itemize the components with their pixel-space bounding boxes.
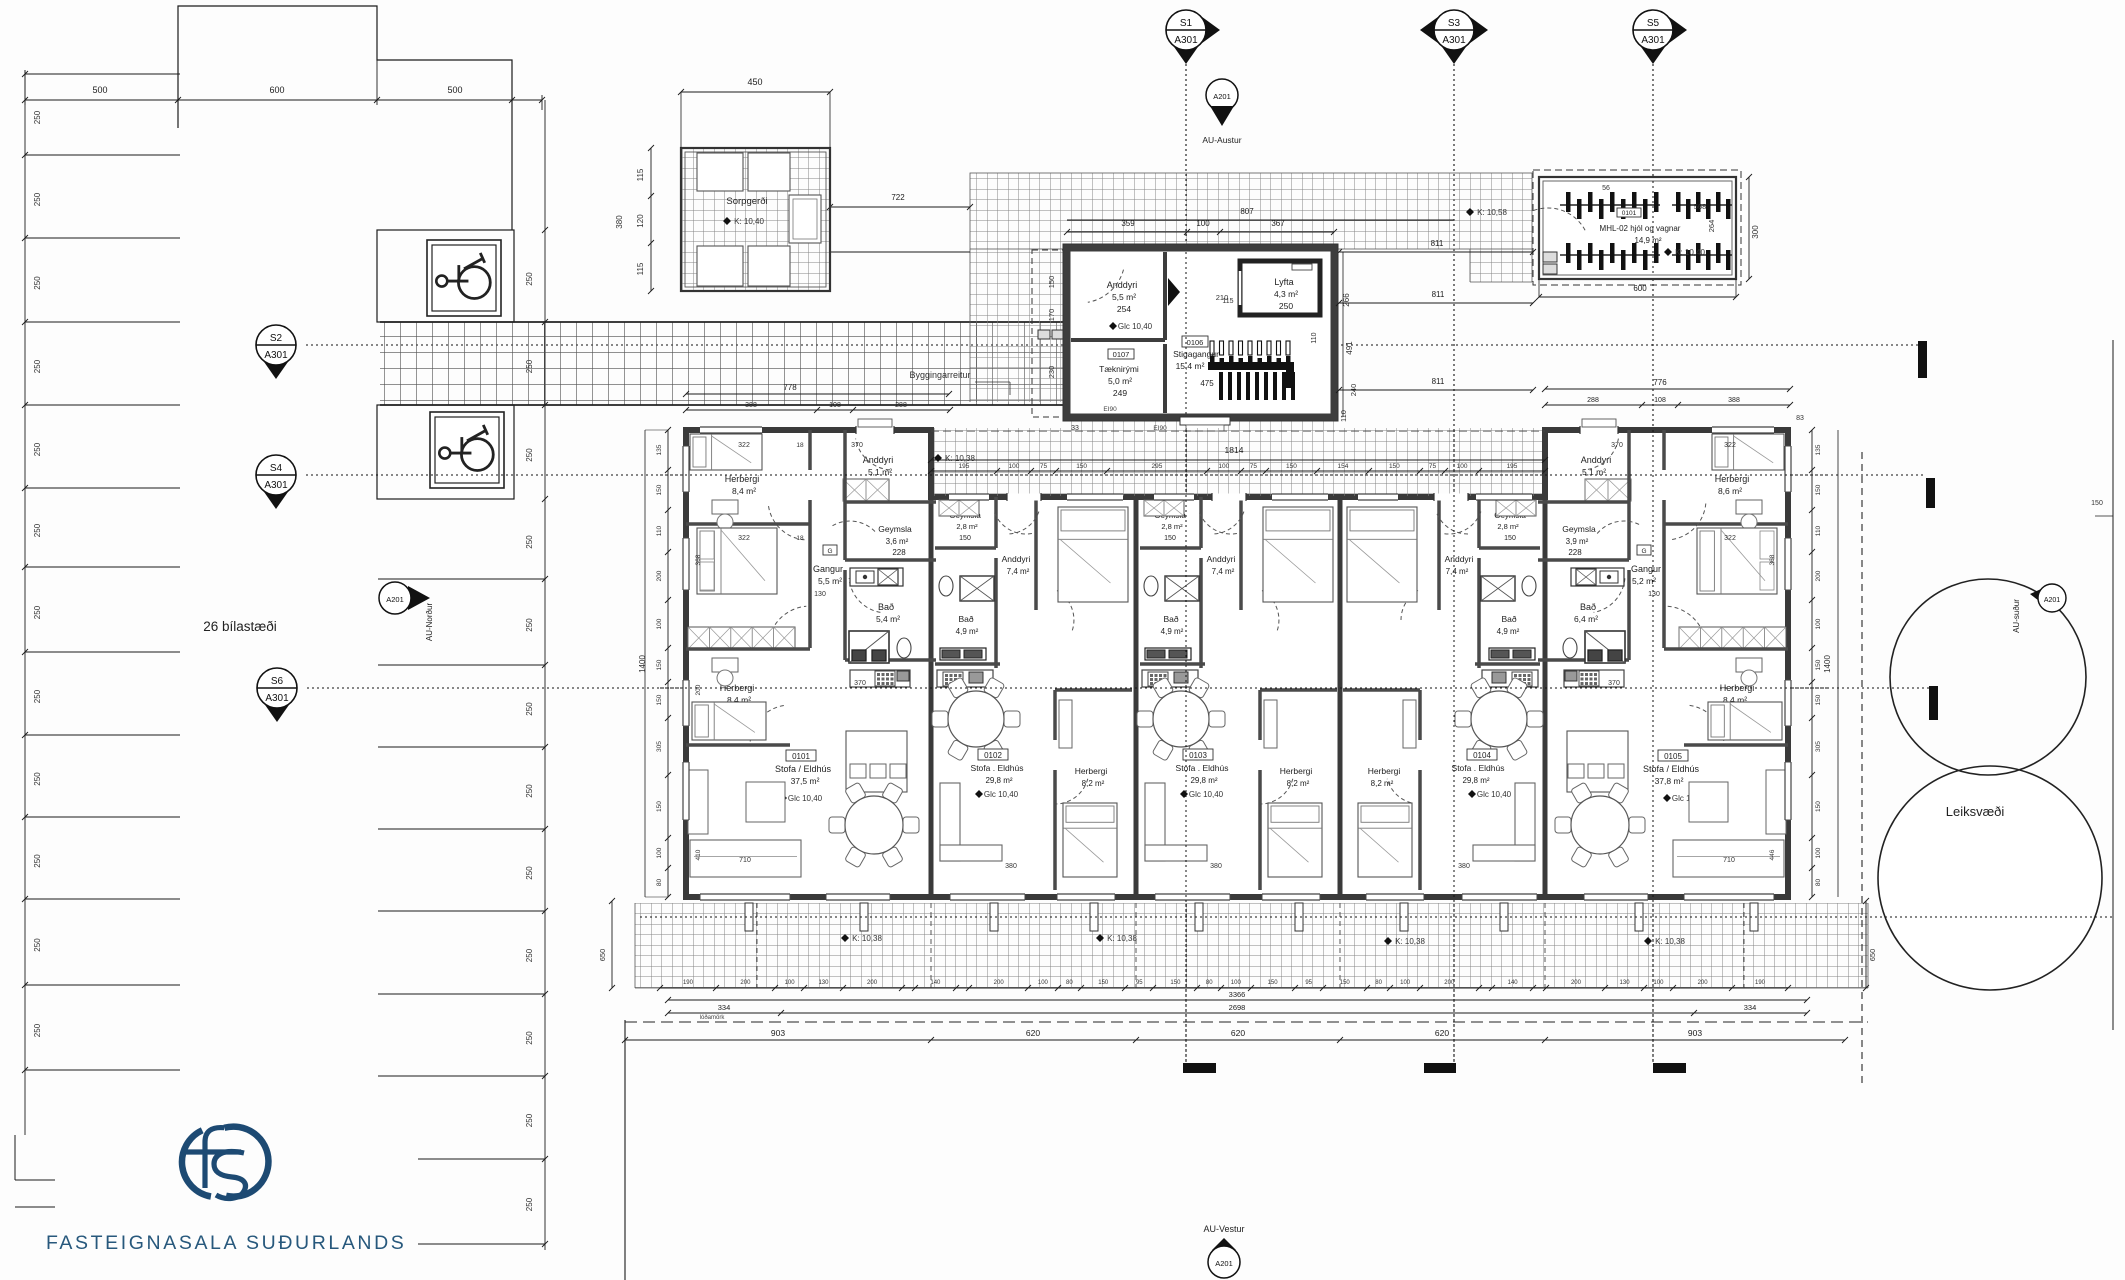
svg-text:Leiksvæði: Leiksvæði [1946,804,2005,819]
svg-text:A301: A301 [1641,35,1665,46]
svg-text:Geymsla: Geymsla [1562,524,1596,534]
svg-text:903: 903 [771,1028,785,1038]
svg-text:150: 150 [959,535,971,542]
svg-text:37,8 m²: 37,8 m² [1655,776,1684,786]
svg-text:Geymsla: Geymsla [878,524,912,534]
svg-text:807: 807 [1240,207,1254,216]
svg-text:410: 410 [695,849,702,860]
svg-text:195: 195 [1507,463,1518,470]
svg-text:620: 620 [1435,1028,1449,1038]
svg-text:100: 100 [1008,463,1019,470]
svg-text:S3: S3 [1448,18,1461,29]
svg-text:288: 288 [1587,397,1599,404]
svg-text:95: 95 [1136,980,1143,986]
svg-text:K: 10,38: K: 10,38 [1655,937,1685,946]
svg-text:150: 150 [1098,980,1109,986]
svg-text:29,8 m²: 29,8 m² [1190,776,1217,785]
svg-text:150: 150 [1815,484,1822,495]
svg-text:K: 10,38: K: 10,38 [1107,934,1137,943]
svg-text:200: 200 [1815,570,1822,581]
svg-text:150: 150 [1076,463,1087,470]
svg-text:100: 100 [1457,463,1468,470]
svg-text:322: 322 [1724,535,1736,542]
svg-text:Glc 10,40: Glc 10,40 [984,790,1019,799]
svg-text:Bað: Bað [1163,614,1178,624]
svg-text:100: 100 [1653,980,1664,986]
svg-text:300: 300 [1751,225,1760,239]
svg-text:2,8 m²: 2,8 m² [1161,522,1183,531]
svg-text:811: 811 [1432,377,1445,386]
svg-text:100: 100 [785,980,796,986]
svg-text:1400: 1400 [638,655,647,673]
svg-text:200: 200 [740,980,751,986]
svg-text:S1: S1 [1180,18,1193,29]
svg-text:380: 380 [1210,863,1222,870]
svg-text:150: 150 [1164,535,1176,542]
svg-text:250: 250 [525,866,534,880]
svg-text:EI90: EI90 [1103,406,1117,413]
svg-text:Bað: Bað [1580,602,1596,612]
svg-text:K: 10,40: K: 10,40 [734,217,764,226]
svg-text:150: 150 [1389,463,1400,470]
svg-text:210: 210 [1216,293,1229,302]
svg-text:A301: A301 [1174,35,1198,46]
svg-text:305: 305 [1815,741,1822,752]
svg-text:Stofa . Eldhús: Stofa . Eldhús [1176,763,1229,773]
svg-text:75: 75 [1250,463,1258,470]
svg-text:500: 500 [447,85,462,95]
svg-text:S4: S4 [270,463,283,474]
svg-text:150: 150 [1268,980,1279,986]
svg-text:80: 80 [1206,980,1213,986]
svg-text:83: 83 [1796,415,1804,422]
svg-text:115: 115 [636,168,645,181]
svg-text:195: 195 [959,463,970,470]
svg-text:368: 368 [695,554,702,565]
svg-text:4,3 m²: 4,3 m² [1274,289,1298,299]
svg-text:190: 190 [1755,980,1766,986]
svg-text:100: 100 [1038,980,1049,986]
svg-text:56: 56 [1602,185,1610,192]
svg-text:A201: A201 [1215,1259,1233,1268]
svg-text:250: 250 [525,948,534,962]
svg-text:AU-Austur: AU-Austur [1202,135,1241,145]
svg-text:0103: 0103 [1189,751,1207,760]
svg-text:250: 250 [33,605,42,619]
svg-text:322: 322 [738,535,750,542]
svg-text:475: 475 [1200,379,1214,388]
svg-text:Stofa . Eldhús: Stofa . Eldhús [971,763,1024,773]
svg-text:250: 250 [525,702,534,716]
svg-text:200: 200 [867,980,878,986]
svg-text:334: 334 [718,1003,731,1012]
svg-text:200: 200 [1444,980,1455,986]
svg-text:29,8 m²: 29,8 m² [985,776,1012,785]
svg-text:8,2 m²: 8,2 m² [1371,779,1394,788]
svg-text:Bað: Bað [1501,614,1516,624]
svg-text:Sorpgerði: Sorpgerði [726,196,767,207]
svg-text:388: 388 [745,402,757,409]
svg-text:80: 80 [1375,980,1382,986]
svg-text:Stofa / Eldhús: Stofa / Eldhús [775,764,832,774]
svg-text:2,8 m²: 2,8 m² [956,522,978,531]
svg-text:G: G [827,548,832,555]
svg-text:S5: S5 [1647,18,1660,29]
svg-text:AU-suður: AU-suður [2012,599,2021,633]
svg-text:15,4 m²: 15,4 m² [1176,361,1205,371]
svg-text:7,4 m²: 7,4 m² [1007,567,1030,576]
svg-text:26 bílastæði: 26 bílastæði [203,619,277,634]
svg-text:322: 322 [738,442,750,449]
svg-text:228: 228 [892,548,906,557]
svg-text:14,9 m²: 14,9 m² [1634,236,1661,245]
svg-text:5,5 m²: 5,5 m² [1112,292,1136,302]
svg-text:AU-Norður: AU-Norður [425,603,434,642]
svg-text:6,4 m²: 6,4 m² [1574,614,1598,624]
svg-text:100: 100 [1815,618,1822,629]
svg-text:500: 500 [92,85,107,95]
svg-text:K: 10,38: K: 10,38 [945,454,975,463]
svg-text:135: 135 [656,444,663,455]
svg-text:80: 80 [656,879,663,887]
svg-text:Byggingarreitur: Byggingarreitur [909,370,970,380]
svg-text:811: 811 [1431,239,1444,248]
svg-text:250: 250 [33,772,42,786]
svg-text:154: 154 [1337,463,1348,470]
svg-text:446: 446 [1769,849,1776,860]
svg-text:100: 100 [656,618,663,629]
svg-text:5,4 m²: 5,4 m² [876,614,900,624]
svg-text:29,8 m²: 29,8 m² [1462,776,1489,785]
svg-text:3,6 m²: 3,6 m² [886,537,909,546]
svg-text:Bað: Bað [878,602,894,612]
svg-text:75: 75 [1040,463,1048,470]
svg-text:250: 250 [33,276,42,290]
svg-text:A201: A201 [386,595,404,604]
svg-text:Herbergi: Herbergi [1280,766,1313,776]
svg-text:100: 100 [1218,463,1229,470]
svg-text:Glc 10,40: Glc 10,40 [1189,790,1224,799]
svg-text:75: 75 [1429,463,1437,470]
svg-text:110: 110 [656,525,663,536]
svg-text:A201: A201 [1213,92,1231,101]
svg-text:130: 130 [1620,980,1631,986]
svg-text:150: 150 [1170,980,1181,986]
svg-text:264: 264 [1707,220,1716,233]
svg-text:4,9 m²: 4,9 m² [1497,627,1520,636]
svg-text:250: 250 [525,448,534,462]
svg-text:334: 334 [1744,1003,1757,1012]
svg-text:200: 200 [1571,980,1582,986]
svg-text:8,4 m²: 8,4 m² [732,486,756,496]
svg-text:Anddyri: Anddyri [1002,554,1031,564]
svg-text:100: 100 [656,847,663,858]
svg-text:A301: A301 [264,480,288,491]
svg-text:Stofa / Eldhús: Stofa / Eldhús [1643,764,1700,774]
svg-text:150: 150 [1815,659,1822,670]
svg-text:250: 250 [33,689,42,703]
svg-text:K: 10,38: K: 10,38 [1395,937,1425,946]
svg-text:MHL-02 hjól og vagnar: MHL-02 hjól og vagnar [1600,224,1681,233]
svg-text:254: 254 [1117,304,1131,314]
svg-text:AU-Vestur: AU-Vestur [1203,1224,1244,1234]
svg-text:170: 170 [1047,309,1056,322]
svg-text:380: 380 [615,215,624,229]
svg-text:K: 10,40: K: 10,40 [1675,248,1705,257]
svg-text:380: 380 [1005,863,1017,870]
svg-text:80: 80 [1815,879,1822,887]
svg-text:1814: 1814 [1225,445,1244,455]
svg-text:600: 600 [269,85,284,95]
svg-text:305: 305 [656,741,663,752]
svg-text:A201: A201 [2044,597,2060,604]
svg-text:722: 722 [891,193,905,202]
svg-text:140: 140 [1508,980,1519,986]
svg-text:620: 620 [1026,1028,1040,1038]
svg-text:A301: A301 [264,350,288,361]
svg-text:108: 108 [829,402,841,409]
svg-text:S6: S6 [271,676,284,687]
svg-text:Gangur: Gangur [813,564,843,574]
svg-text:Glc 10,40: Glc 10,40 [1118,322,1153,331]
svg-text:250: 250 [33,442,42,456]
svg-text:200: 200 [656,570,663,581]
svg-text:S2: S2 [270,333,283,344]
svg-text:Herbergi: Herbergi [1368,766,1401,776]
svg-text:3366: 3366 [1229,990,1246,999]
svg-text:110: 110 [1339,410,1348,422]
svg-text:150: 150 [656,484,663,495]
svg-text:811: 811 [1432,290,1445,299]
svg-text:95: 95 [1305,980,1312,986]
svg-text:250: 250 [525,618,534,632]
svg-text:Glc 10,40: Glc 10,40 [788,794,823,803]
svg-text:150: 150 [1815,801,1822,812]
svg-text:Herbergi: Herbergi [1075,766,1108,776]
svg-text:Anddyri: Anddyri [1107,280,1138,290]
svg-text:0106: 0106 [1187,338,1204,347]
svg-text:K: 10,38: K: 10,38 [852,934,882,943]
svg-text:200: 200 [695,684,702,695]
svg-text:4,9 m²: 4,9 m² [1161,627,1184,636]
svg-text:18: 18 [796,535,804,542]
svg-text:100: 100 [1815,847,1822,858]
svg-text:491: 491 [1345,341,1354,355]
svg-text:710: 710 [1723,857,1735,864]
svg-text:100: 100 [1231,980,1242,986]
svg-text:0101: 0101 [792,752,810,761]
svg-text:150: 150 [656,694,663,705]
svg-text:130: 130 [818,980,829,986]
svg-text:130: 130 [1648,591,1660,598]
svg-text:FASTEIGNASALA SUÐURLANDS: FASTEIGNASALA SUÐURLANDS [46,1232,406,1254]
svg-text:250: 250 [33,938,42,952]
svg-text:200: 200 [1698,980,1709,986]
svg-text:200: 200 [994,980,1005,986]
svg-text:250: 250 [33,110,42,124]
svg-text:190: 190 [683,980,694,986]
svg-text:903: 903 [1688,1028,1702,1038]
svg-text:Glc 10,40: Glc 10,40 [1477,790,1512,799]
svg-text:710: 710 [739,857,751,864]
svg-text:130: 130 [814,591,826,598]
svg-text:150: 150 [656,659,663,670]
svg-text:Gangur: Gangur [1631,564,1661,574]
svg-text:37,5 m²: 37,5 m² [791,776,820,786]
svg-text:250: 250 [1279,301,1293,311]
svg-text:250: 250 [525,1113,534,1127]
svg-text:0107: 0107 [1113,350,1130,359]
svg-text:5,0 m²: 5,0 m² [1108,376,1132,386]
svg-text:250: 250 [33,359,42,373]
svg-text:150: 150 [1815,694,1822,705]
svg-text:135: 135 [1815,444,1822,455]
svg-text:250: 250 [525,1197,534,1211]
svg-text:370: 370 [854,680,866,687]
svg-text:150: 150 [656,801,663,812]
svg-text:0102: 0102 [984,751,1002,760]
svg-text:7,4 m²: 7,4 m² [1212,567,1235,576]
svg-text:Anddyri: Anddyri [1445,554,1474,564]
svg-text:250: 250 [525,1031,534,1045]
svg-text:A301: A301 [1442,35,1466,46]
svg-text:250: 250 [33,192,42,206]
svg-text:G: G [1641,548,1646,555]
svg-text:228: 228 [1568,548,1582,557]
svg-text:568: 568 [1694,202,1707,211]
svg-text:370: 370 [1611,442,1623,449]
svg-text:650: 650 [598,949,607,962]
svg-text:150: 150 [2091,500,2103,507]
svg-text:250: 250 [33,523,42,537]
svg-text:80: 80 [1066,980,1073,986]
svg-text:249: 249 [1113,388,1127,398]
svg-text:18: 18 [796,442,804,449]
svg-text:250: 250 [33,1023,42,1037]
svg-text:5,5 m²: 5,5 m² [818,576,842,586]
svg-text:0105: 0105 [1664,752,1682,761]
svg-text:110: 110 [1311,332,1318,343]
svg-text:150: 150 [1504,535,1516,542]
svg-text:7,4 m²: 7,4 m² [1446,567,1469,576]
svg-text:620: 620 [1231,1028,1245,1038]
svg-text:140: 140 [930,980,941,986]
svg-text:250: 250 [525,272,534,286]
svg-text:115: 115 [636,262,645,275]
svg-text:322: 322 [1724,442,1736,449]
svg-text:2,8 m²: 2,8 m² [1497,522,1519,531]
svg-text:Lyfta: Lyfta [1274,277,1293,287]
svg-text:Tæknirými: Tæknirými [1099,364,1139,374]
svg-text:1400: 1400 [1823,655,1832,673]
svg-text:8,6 m²: 8,6 m² [1718,486,1742,496]
svg-text:3,9 m²: 3,9 m² [1566,537,1589,546]
svg-text:A301: A301 [265,693,289,704]
svg-text:0104: 0104 [1473,751,1491,760]
svg-text:100: 100 [1400,980,1411,986]
svg-text:370: 370 [1608,680,1620,687]
svg-text:450: 450 [747,77,762,87]
svg-text:120: 120 [636,214,645,228]
svg-text:lóðamörk: lóðamörk [700,1014,726,1021]
svg-text:K: 10,58: K: 10,58 [1477,208,1507,217]
svg-text:2698: 2698 [1229,1003,1246,1012]
svg-text:778: 778 [783,383,797,392]
svg-text:Stofa . Eldhús: Stofa . Eldhús [1452,763,1505,773]
svg-text:368: 368 [1769,554,1776,565]
svg-text:Anddyri: Anddyri [1207,554,1236,564]
svg-text:4,9 m²: 4,9 m² [956,627,979,636]
svg-text:776: 776 [1653,378,1667,387]
svg-text:250: 250 [33,854,42,868]
svg-text:110: 110 [1815,525,1822,536]
svg-text:380: 380 [1458,863,1470,870]
svg-text:150: 150 [1286,463,1297,470]
svg-text:250: 250 [525,535,534,549]
svg-text:108: 108 [1654,397,1666,404]
svg-text:230: 230 [1047,366,1056,379]
svg-text:295: 295 [1152,463,1163,470]
svg-text:Bað: Bað [958,614,973,624]
svg-text:370: 370 [851,442,863,449]
svg-text:0101: 0101 [1622,210,1637,217]
svg-text:388: 388 [1728,397,1740,404]
svg-text:250: 250 [525,784,534,798]
svg-text:150: 150 [1340,980,1351,986]
svg-text:150: 150 [1047,276,1056,289]
svg-text:600: 600 [1633,284,1647,293]
svg-text:650: 650 [1868,949,1877,962]
svg-text:288: 288 [895,402,907,409]
